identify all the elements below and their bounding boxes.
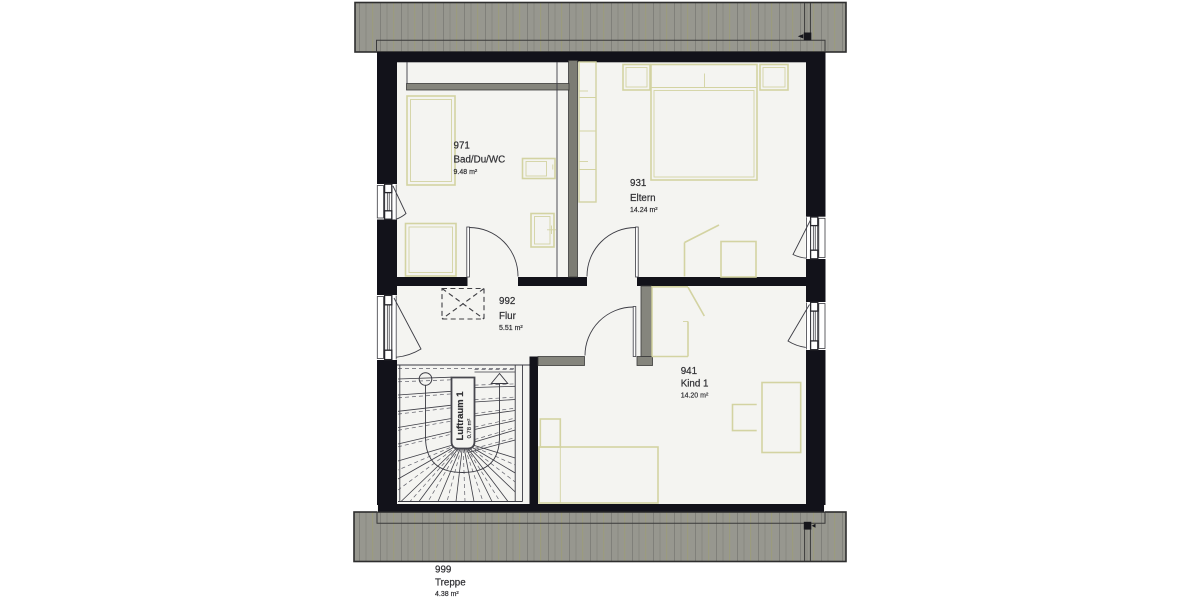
svg-text:941: 941 (681, 366, 697, 377)
svg-text:Bad/Du/WC: Bad/Du/WC (454, 155, 506, 166)
svg-text:Eltern: Eltern (630, 193, 656, 204)
svg-text:999: 999 (435, 564, 451, 575)
svg-text:992: 992 (499, 296, 515, 307)
svg-text:4.38 m²: 4.38 m² (435, 591, 459, 598)
svg-text:971: 971 (454, 140, 470, 151)
svg-text:931: 931 (630, 178, 646, 189)
svg-text:0.78 m²: 0.78 m² (467, 419, 473, 439)
svg-text:Kind 1: Kind 1 (681, 379, 709, 390)
svg-text:9.48 m²: 9.48 m² (454, 169, 478, 176)
svg-text:Treppe: Treppe (435, 578, 466, 589)
svg-text:5.51 m²: 5.51 m² (499, 325, 523, 332)
svg-text:Luftraum 1: Luftraum 1 (455, 391, 466, 441)
svg-text:Flur: Flur (499, 311, 517, 322)
svg-text:14.20 m²: 14.20 m² (681, 393, 709, 400)
svg-text:14.24 m²: 14.24 m² (630, 207, 658, 214)
